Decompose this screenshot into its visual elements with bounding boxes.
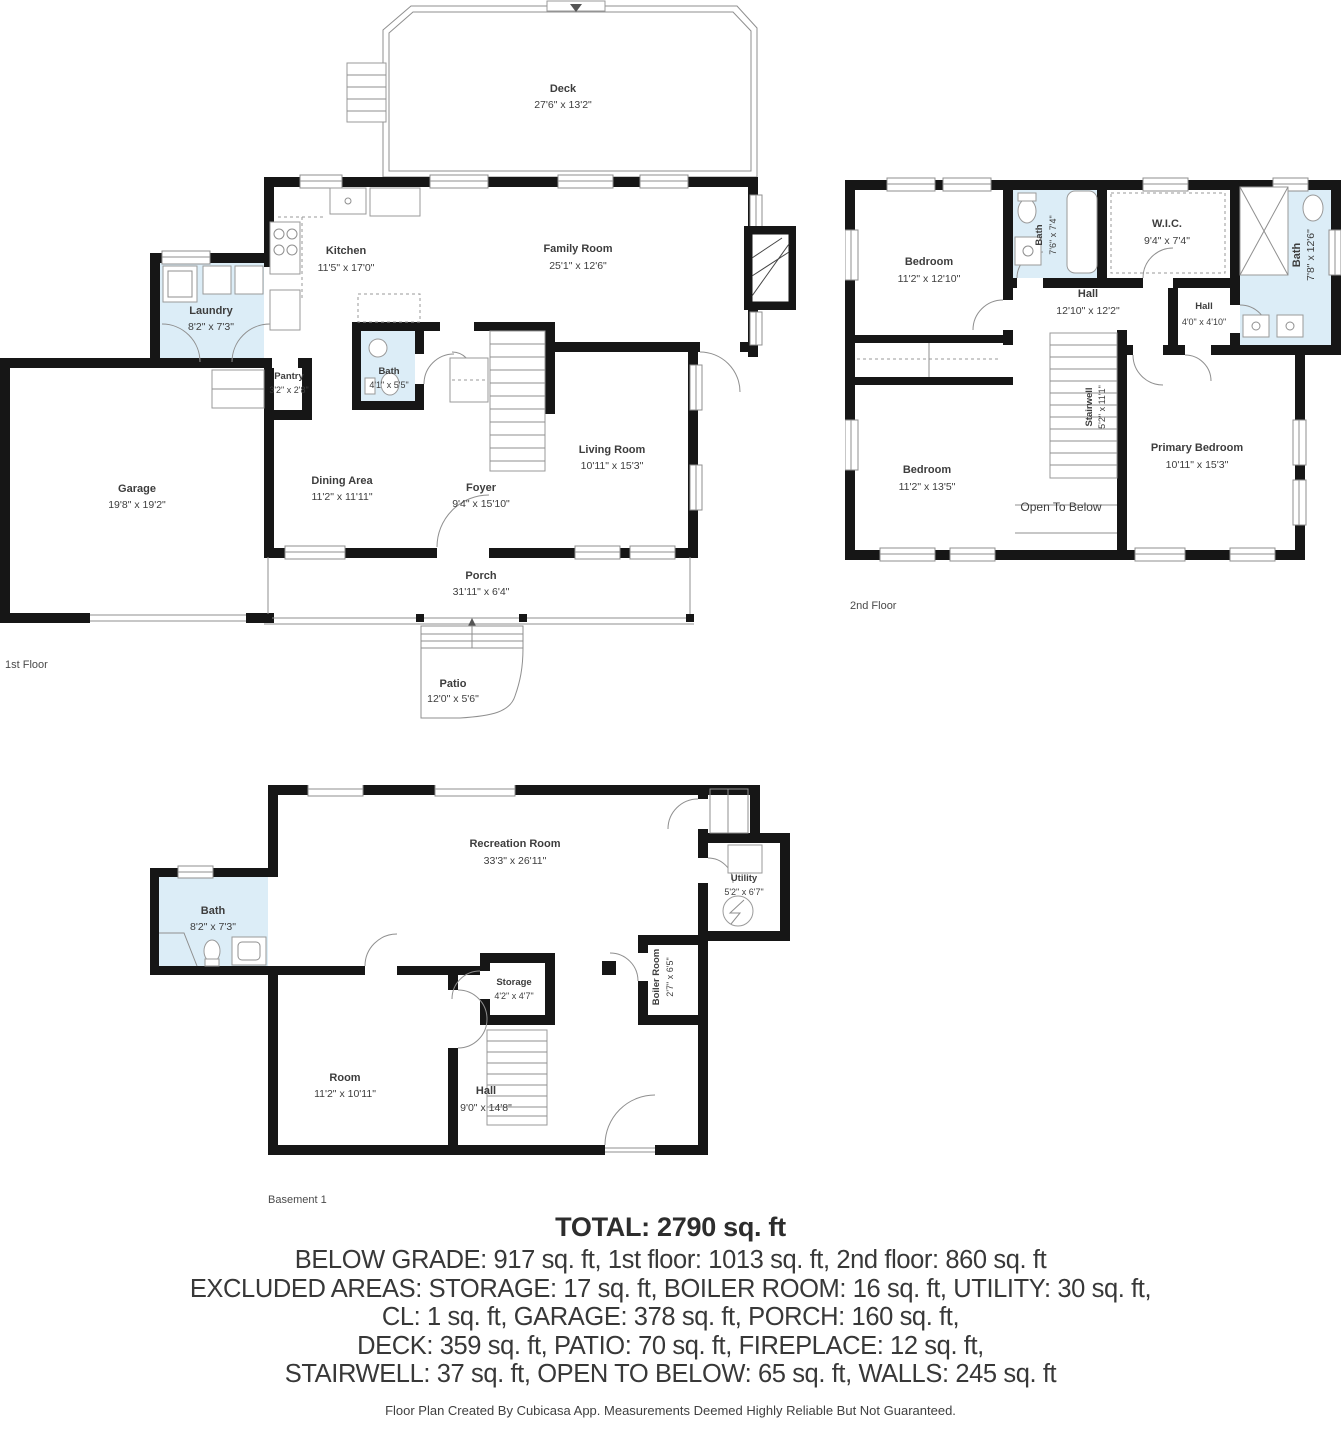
kitchen-fixtures (270, 188, 420, 330)
room-label-hall-b: Hall (476, 1085, 496, 1097)
room-label-hall1: Hall (1078, 288, 1098, 300)
tank-icon (728, 845, 762, 873)
room-dims-bath1f: 4'1" x 5'5" (369, 380, 408, 390)
first-floor-plan: Deck 27'6" x 13'2" Kitchen 11'5" x 17'0"… (0, 0, 800, 730)
summary-line-excluded: EXCLUDED AREAS: STORAGE: 17 sq. ft, BOIL… (0, 1275, 1341, 1304)
room-label-hall2: Hall (1195, 301, 1212, 312)
sink-icon (232, 937, 266, 965)
room-label-laundry: Laundry (189, 305, 233, 317)
room-label-bath1: Bath (1034, 224, 1045, 245)
room-label-rec: Recreation Room (469, 838, 560, 850)
closets (857, 343, 1001, 377)
room-label-family: Family Room (543, 243, 612, 255)
garage-fixtures (90, 370, 264, 621)
room-label-storage: Storage (496, 977, 531, 988)
floorplan-page: { "floors": { "first": { "label": "1st F… (0, 0, 1341, 1429)
room-dims-hall2: 4'0" x 4'10" (1182, 317, 1226, 327)
toilet-icon (1018, 199, 1036, 223)
toilet-icon (1303, 195, 1323, 221)
room-label-living: Living Room (579, 444, 646, 456)
room-dims-garage: 19'8" x 19'2" (108, 499, 166, 511)
room-dims-patio: 12'0" x 5'6" (427, 693, 479, 705)
measurement-summary: TOTAL: 2790 sq. ft BELOW GRADE: 917 sq. … (0, 1212, 1341, 1431)
room-dims-pantry: 3'2" x 2'8" (269, 385, 308, 395)
room-dims-primary: 10'11" x 15'3" (1166, 459, 1229, 471)
room-label-pantry: Pantry (274, 371, 304, 382)
room-label-utility: Utility (731, 873, 758, 884)
room-label-porch: Porch (465, 570, 496, 582)
room-label-bedroom2: Bedroom (903, 464, 952, 476)
wic-fixtures (1111, 193, 1225, 273)
room-label-bath1f: Bath (378, 366, 399, 377)
room-dims-bath2: 7'8" x 12'6" (1305, 229, 1317, 281)
room-label-primary: Primary Bedroom (1151, 442, 1244, 454)
room-label-deck: Deck (550, 83, 577, 95)
room-dims-boiler: 2'7" x 6'5" (665, 957, 675, 996)
room-dims-living: 10'11" x 15'3" (581, 460, 644, 472)
room-dims-utility: 5'2" x 6'7" (724, 887, 763, 897)
room-label-bath-b: Bath (201, 905, 226, 917)
room-label-room: Room (329, 1072, 360, 1084)
second-floor-label: 2nd Floor (850, 600, 897, 612)
room-label-dining: Dining Area (311, 475, 373, 487)
kitchen-island (358, 294, 420, 322)
summary-line-stairwell: STAIRWELL: 37 sq. ft, OPEN TO BELOW: 65 … (0, 1360, 1341, 1389)
sink-icon (369, 339, 387, 357)
room-dims-wic: 9'4" x 7'4" (1144, 235, 1190, 247)
room-dims-kitchen: 11'5" x 17'0" (318, 262, 375, 274)
room-dims-porch: 31'11" x 6'4" (453, 586, 510, 598)
room-label-bedroom1: Bedroom (905, 256, 954, 268)
room-dims-stairwell: 5'2" x 11'1" (1097, 385, 1107, 429)
summary-line-garage: CL: 1 sq. ft, GARAGE: 378 sq. ft, PORCH:… (0, 1303, 1341, 1332)
room-dims-bedroom1: 11'2" x 12'10" (898, 273, 961, 285)
windows (178, 785, 515, 878)
room-label-patio: Patio (440, 678, 467, 690)
room-dims-rec: 33'3" x 26'11" (484, 855, 547, 867)
room-dims-laundry: 8'2" x 7'3" (188, 321, 234, 333)
utility-fixtures (723, 845, 762, 926)
room-dims-foyer: 9'4" x 15'10" (452, 498, 510, 510)
room-dims-family: 25'1" x 12'6" (549, 260, 607, 272)
water-heater-icon (723, 896, 753, 926)
room-label-bath2: Bath (1291, 243, 1303, 268)
first-floor-label: 1st Floor (5, 659, 48, 671)
second-floor-plan: Bedroom 11'2" x 12'10" Bath 7'6" x 7'4" … (845, 175, 1341, 615)
room-label-wic: W.I.C. (1152, 218, 1182, 230)
room-label-foyer: Foyer (466, 482, 497, 494)
total-area: TOTAL: 2790 sq. ft (0, 1212, 1341, 1243)
fireplace (744, 226, 796, 310)
room-label-stairwell: Stairwell (1084, 387, 1095, 426)
room-label-open-below: Open To Below (1020, 500, 1101, 514)
basement-floor-plan: Recreation Room 33'3" x 26'11" Bath 8'2"… (150, 785, 800, 1215)
room-dims-bath-b: 8'2" x 7'3" (190, 921, 236, 933)
sink-icon (1243, 315, 1269, 337)
summary-line-grades: BELOW GRADE: 917 sq. ft, 1st floor: 1013… (0, 1246, 1341, 1275)
sink-icon (1277, 315, 1303, 337)
room-dims-bath1: 7'6" x 7'4" (1048, 215, 1058, 254)
room-dims-bedroom2: 11'2" x 13'5" (899, 481, 956, 493)
bathtub-icon (1067, 191, 1097, 273)
room-label-kitchen: Kitchen (326, 245, 367, 257)
corner-closet (710, 789, 748, 833)
room-label-boiler: Boiler Room (651, 949, 662, 1005)
support-post (602, 961, 616, 975)
foyer-stairs (450, 331, 545, 471)
room-dims-dining: 11'2" x 11'11" (311, 491, 372, 503)
room-dims-deck: 27'6" x 13'2" (534, 99, 592, 111)
room-dims-hall-b: 9'0" x 14'8" (460, 1102, 512, 1114)
deck-stairs (347, 63, 386, 122)
porch-entry-arrow-icon (468, 618, 476, 626)
basement-floor-label: Basement 1 (268, 1194, 327, 1206)
summary-line-deck: DECK: 359 sq. ft, PATIO: 70 sq. ft, FIRE… (0, 1332, 1341, 1361)
room-dims-storage: 4'2" x 4'7" (494, 991, 533, 1001)
room-label-garage: Garage (118, 483, 156, 495)
room-dims-hall1: 12'10" x 12'2" (1056, 305, 1120, 317)
disclaimer: Floor Plan Created By Cubicasa App. Meas… (0, 1403, 1341, 1418)
room-dims-room: 11'2" x 10'11" (314, 1088, 376, 1100)
